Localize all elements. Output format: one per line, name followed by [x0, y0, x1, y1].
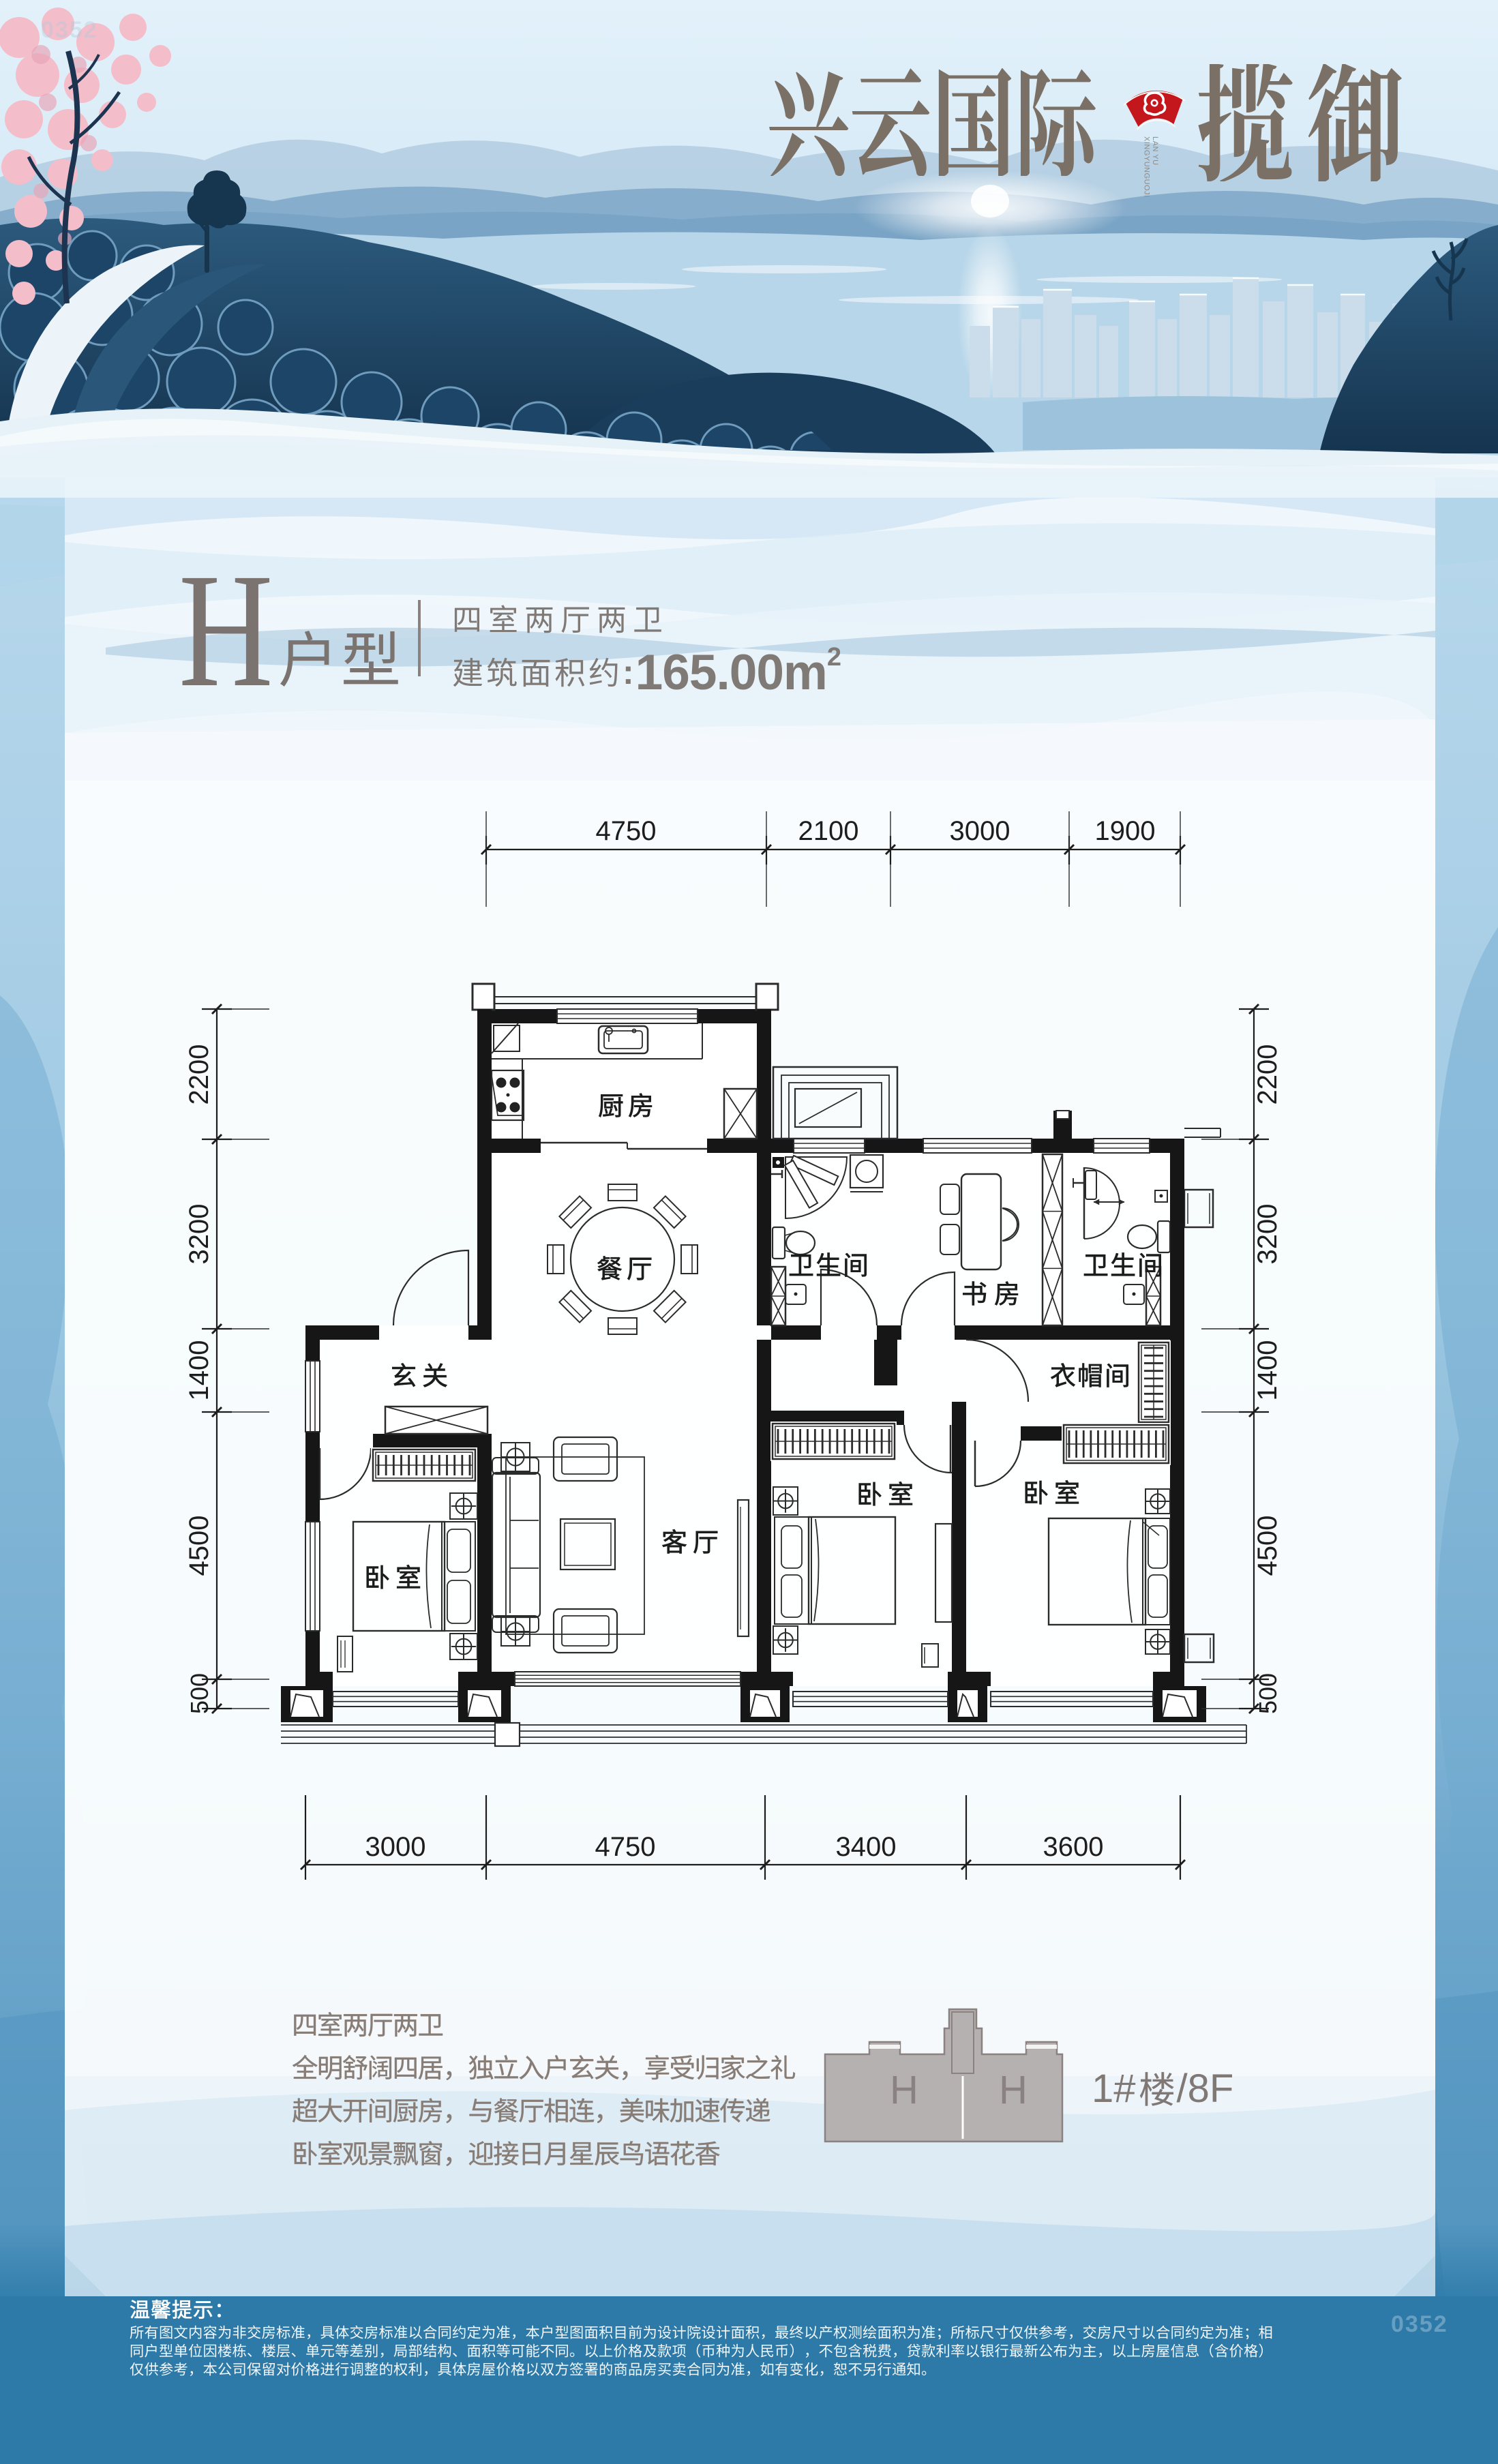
svg-text:4500: 4500: [1253, 1516, 1283, 1576]
svg-text:H: H: [890, 2068, 918, 2112]
svg-text:4750: 4750: [596, 816, 657, 846]
svg-text:2100: 2100: [798, 816, 859, 846]
svg-text:3400: 3400: [836, 1832, 897, 1862]
svg-text:3200: 3200: [1253, 1204, 1283, 1265]
svg-text:4750: 4750: [595, 1832, 656, 1862]
svg-text:H: H: [999, 2068, 1028, 2112]
svg-text:500: 500: [1254, 1673, 1282, 1714]
svg-text:4500: 4500: [184, 1516, 214, 1576]
svg-text:3200: 3200: [184, 1204, 214, 1265]
svg-text:2200: 2200: [1253, 1045, 1283, 1105]
svg-text:1400: 1400: [1253, 1340, 1283, 1401]
svg-text:1400: 1400: [184, 1340, 214, 1401]
svg-text:3000: 3000: [365, 1832, 426, 1862]
svg-text:3000: 3000: [950, 816, 1010, 846]
svg-text:3600: 3600: [1043, 1832, 1104, 1862]
svg-text:500: 500: [185, 1673, 213, 1714]
svg-text:2200: 2200: [184, 1045, 214, 1105]
svg-text:1900: 1900: [1095, 816, 1156, 846]
